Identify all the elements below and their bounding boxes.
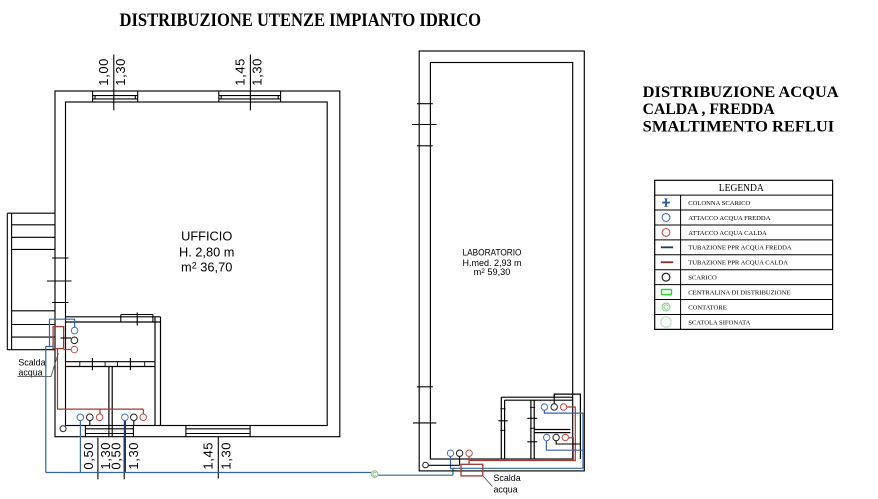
svg-text:1,45: 1,45 [201, 442, 216, 470]
svg-text:CONTATORE: CONTATORE [688, 304, 727, 311]
svg-text:UFFICIO: UFFICIO [181, 229, 232, 244]
svg-text:1,45: 1,45 [233, 58, 248, 86]
svg-text:TUBAZIONE PPR ACQUA CALDA: TUBAZIONE PPR ACQUA CALDA [688, 260, 788, 267]
svg-text:COLONNA SCARICO: COLONNA SCARICO [688, 200, 750, 207]
svg-text:SCATOLA SIFONATA: SCATOLA SIFONATA [688, 319, 750, 326]
svg-text:1,30: 1,30 [113, 58, 128, 86]
svg-text:TUBAZIONE PPR ACQUA FREDDA: TUBAZIONE PPR ACQUA FREDDA [688, 245, 792, 252]
svg-text:0,50: 0,50 [109, 442, 124, 470]
svg-text:LEGENDA: LEGENDA [719, 183, 764, 194]
svg-text:SMALTIMENTO REFLUI: SMALTIMENTO REFLUI [643, 118, 835, 135]
svg-text:ATTACCO ACQUA CALDA: ATTACCO ACQUA CALDA [688, 230, 767, 237]
svg-text:DISTRIBUZIONE ACQUA: DISTRIBUZIONE ACQUA [643, 84, 840, 101]
svg-text:SCARICO: SCARICO [688, 275, 717, 282]
svg-text:1,30: 1,30 [126, 442, 141, 470]
svg-text:1,00: 1,00 [96, 58, 111, 86]
svg-text:ATTACCO ACQUA FREDDA: ATTACCO ACQUA FREDDA [688, 215, 771, 222]
svg-text:CENTRALINA DI DISTRIBUZIONE: CENTRALINA DI DISTRIBUZIONE [688, 289, 790, 296]
svg-text:1,30: 1,30 [219, 442, 234, 470]
svg-text:acqua: acqua [494, 485, 518, 495]
svg-text:Scalda: Scalda [494, 473, 521, 483]
svg-text:m2 36,70: m2 36,70 [181, 260, 232, 275]
svg-text:0,50: 0,50 [81, 442, 96, 470]
svg-text:1,30: 1,30 [250, 58, 265, 86]
svg-text:CALDA , FREDDA: CALDA , FREDDA [643, 101, 776, 118]
svg-text:acqua: acqua [18, 368, 42, 378]
svg-text:H. 2,80 m: H. 2,80 m [179, 245, 234, 260]
svg-text:m2 59,30: m2 59,30 [474, 267, 511, 277]
svg-text:LABORATORIO: LABORATORIO [463, 248, 522, 258]
svg-text:DISTRIBUZIONE UTENZE IMPIANTO: DISTRIBUZIONE UTENZE IMPIANTO IDRICO [120, 10, 482, 31]
svg-text:Scalda: Scalda [18, 358, 45, 368]
